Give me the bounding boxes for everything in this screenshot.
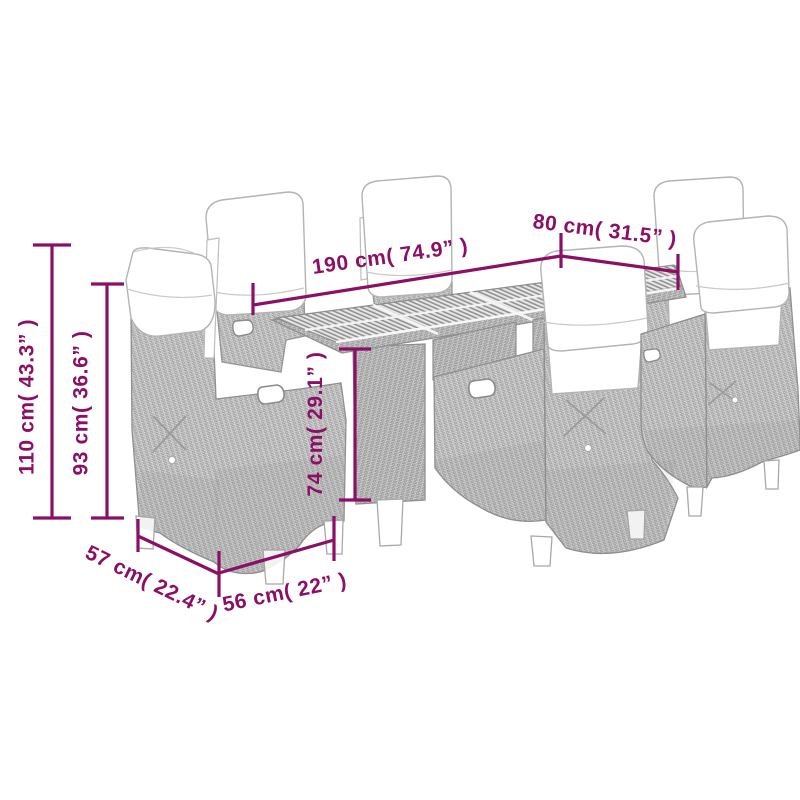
svg-text:74 cm( 29.1” ): 74 cm( 29.1” ) xyxy=(304,352,327,497)
svg-text:93 cm( 36.6” ): 93 cm( 36.6” ) xyxy=(70,331,93,476)
svg-text:110 cm( 43.3” ): 110 cm( 43.3” ) xyxy=(16,319,39,475)
